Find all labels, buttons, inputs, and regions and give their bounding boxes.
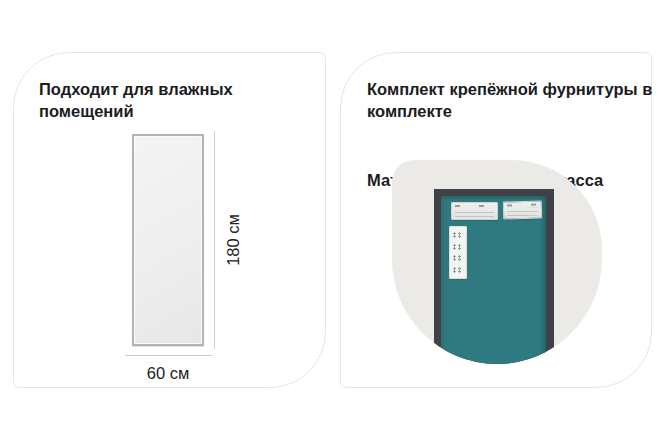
instruction-sticker [451,202,498,220]
height-measure-line [214,131,215,349]
info-card-wet-rooms: Подходит для влажных помещений 180 см 60… [13,52,326,388]
instruction-sticker [503,200,542,219]
screw-pack [453,267,463,273]
mirror-protective-film [441,196,546,364]
width-measure-line [125,355,212,356]
card-title: Комплект крепёжной фурнитуры в комплекте [367,78,661,122]
info-card-hardware: Комплект крепёжной фурнитуры в комплекте… [340,52,652,388]
product-infographic-page: Подходит для влажных помещений 180 см 60… [0,0,666,444]
framed-mirror-photo [434,189,554,364]
product-photo [392,160,602,364]
screw-pack [453,232,463,238]
width-dimension-label: 60 см [147,364,190,383]
height-dimension-label: 180 см [224,214,243,266]
hardware-strip [449,226,467,279]
screw-pack [453,244,463,250]
screw-pack [453,255,463,261]
card-title: Подходит для влажных помещений [39,78,281,122]
mirror-illustration [132,134,204,346]
